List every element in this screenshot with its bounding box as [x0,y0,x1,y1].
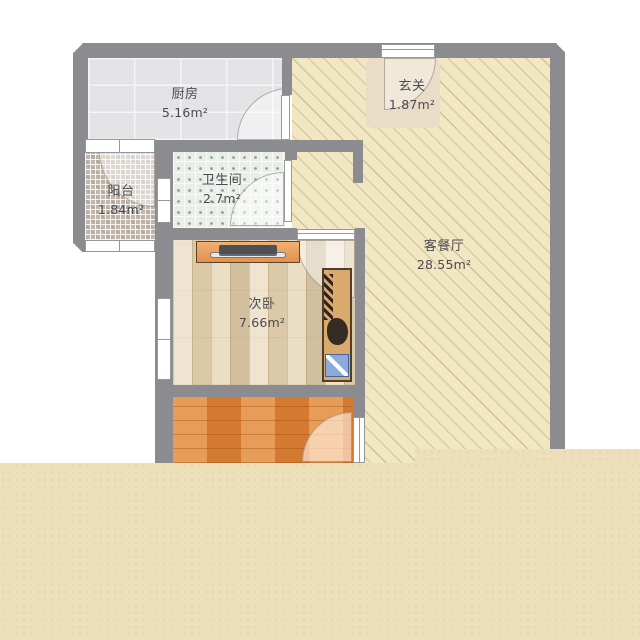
bathroom-door-leaf [284,160,292,222]
south-room-window [353,417,365,463]
wall-bedroom-top-right [355,228,365,240]
floor-plan: 厨房 5.16m² 玄关 1.87m² 阳台 1.84m² 卫生间 2.7m² … [0,0,640,640]
wall-bedroom-right [355,240,365,397]
wall-top [73,43,565,58]
room-name: 客餐厅 [389,238,499,256]
kitchen-balcony-window [85,139,155,153]
room-area: 7.66m² [207,314,317,332]
wall-kitchen-right [282,58,292,95]
bedroom-west-window [157,298,171,380]
wall-bathroom-right [285,152,297,160]
room-area: 1.87m² [357,96,467,114]
wardrobe [322,268,352,382]
label-kitchen: 厨房 5.16m² [130,86,240,122]
wardrobe-hangers-icon [324,274,333,320]
room-name: 厨房 [130,86,240,104]
room-area: 1.84m² [66,201,176,219]
tv-icon [219,245,277,254]
wall-bedroom-bottom [155,385,365,397]
wall-stub-vertical [353,152,363,183]
room-area: 2.7m² [167,190,277,208]
bottom-mask [0,463,640,640]
room-name: 卫生间 [167,172,277,190]
room-name: 玄关 [357,78,467,96]
door-leaf-line [298,233,354,234]
wall-left-kitchen [73,58,88,140]
window-mullion [158,339,170,340]
room-area: 28.55m² [389,256,499,274]
room-name: 次卧 [207,296,317,314]
balcony-bottom-window [85,240,155,252]
room-name: 阳台 [66,183,176,201]
label-living-dining: 客餐厅 28.55m² [389,238,499,274]
door-leaf-line [382,49,434,50]
label-bedroom: 次卧 7.66m² [207,296,317,332]
label-hallway: 玄关 1.87m² [357,78,467,114]
window-mullion [119,140,120,152]
wall-bedroom-top-left [155,228,297,240]
wall-right [550,58,565,449]
wardrobe-drawer-icon [325,354,349,377]
room-area: 5.16m² [130,104,240,122]
bedroom-door-leaf [297,229,355,240]
window-mullion [119,241,120,251]
window-mullion [359,418,360,462]
entry-door-leaf [381,44,435,58]
wardrobe-clothes-icon [327,318,348,345]
label-bathroom: 卫生间 2.7m² [167,172,277,208]
wall-south-right [353,397,365,417]
kitchen-door-leaf [281,95,290,140]
label-balcony: 阳台 1.84m² [66,183,176,219]
